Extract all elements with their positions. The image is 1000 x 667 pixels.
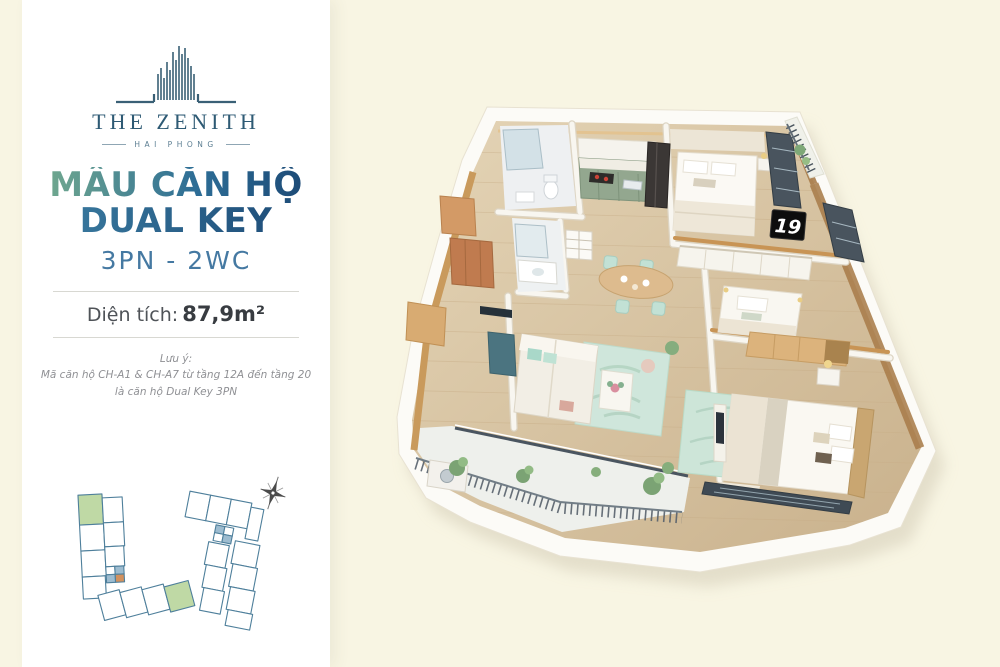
shower [503, 129, 543, 170]
mint-pillow [543, 352, 557, 364]
fridge [645, 142, 670, 208]
blush-pillow [559, 400, 574, 412]
compass-rose-icon [255, 473, 290, 513]
tv-console [488, 332, 516, 376]
pillow [828, 424, 852, 441]
basin [532, 268, 544, 276]
key-plan-diagram [51, 467, 301, 637]
listing-title: MẪU CĂN HỘ DUAL KEY 3PN - 2WC [49, 167, 303, 275]
ac-ledge-box [406, 302, 446, 346]
brand-name: THE ZENITH [92, 109, 260, 135]
pillow [737, 296, 768, 312]
brand-location-row: HAI PHONG [102, 140, 249, 149]
pillow [683, 160, 708, 174]
area-value: 87,9m² [182, 302, 265, 326]
nightstand [758, 158, 770, 171]
dash-right [226, 144, 250, 145]
master-tv [716, 412, 724, 444]
lamp [761, 153, 767, 159]
svg-text:19: 19 [774, 215, 802, 239]
tall-cabinet [440, 196, 476, 236]
note-text: Lưu ý: Mã căn hộ CH-A1 & CH-A7 từ tầng 1… [41, 351, 311, 401]
corner-plant [665, 341, 679, 355]
area-row: Diện tích:87,9m² [53, 291, 299, 338]
unit-config: 3PN - 2WC [49, 248, 303, 275]
key-plan-left-wing [78, 489, 196, 630]
shower-tub [515, 224, 548, 258]
cooktop [589, 172, 614, 184]
bedroom-1 [670, 129, 770, 236]
zenith-towers-logo-icon [110, 44, 242, 106]
dining-chair [651, 301, 665, 315]
toilet [544, 181, 558, 199]
dining-chair [615, 299, 629, 313]
nightstand [817, 368, 840, 386]
unit-number-sign: 19 [770, 210, 806, 241]
lamp [798, 298, 803, 303]
lamp [824, 360, 832, 368]
balcony-plant [591, 467, 601, 477]
headboard-panel [670, 129, 765, 152]
accent-pillow [815, 452, 832, 464]
pillow [830, 446, 854, 463]
blanket [673, 200, 755, 236]
lamp [724, 288, 729, 293]
note-heading: Lưu ý: [41, 351, 311, 368]
bathroom-2 [512, 218, 566, 292]
brand-location: HAI PHONG [134, 140, 217, 149]
area-label: Diện tích: [87, 304, 178, 326]
highlighted-unit [78, 494, 104, 525]
pillow [711, 162, 736, 176]
accent-pillow [813, 432, 830, 444]
info-panel: THE ZENITH HAI PHONG MẪU CĂN HỘ DUAL KEY… [22, 0, 330, 667]
toilet-tank [544, 175, 557, 182]
dash-left [102, 144, 126, 145]
kitchen [578, 138, 670, 208]
kitchen-sink [623, 180, 642, 190]
note-line-2: là căn hộ Dual Key 3PN [41, 384, 311, 401]
bath1-sink [516, 192, 534, 202]
bathroom-1 [500, 125, 576, 210]
mint-pillow [527, 348, 542, 361]
title-line-1: MẪU CĂN HỘ [49, 167, 303, 203]
page: { "colors": { "page-bg": "#F8F5E3", "pan… [0, 0, 1000, 667]
brand-logo: THE ZENITH HAI PHONG [92, 44, 260, 149]
entry-wardrobe [450, 238, 494, 288]
title-line-2: DUAL KEY [49, 203, 303, 239]
note-line-1: Mã căn hộ CH-A1 & CH-A7 từ tầng 12A đến … [41, 367, 311, 384]
